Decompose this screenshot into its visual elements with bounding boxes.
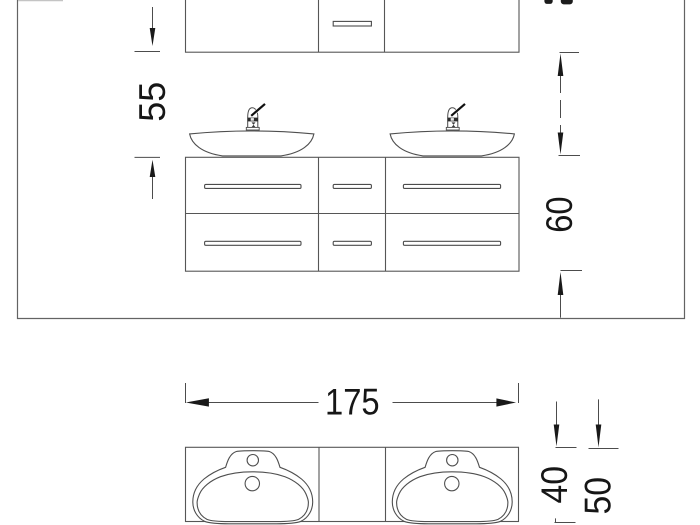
svg-text:55: 55	[132, 82, 174, 122]
svg-text:60: 60	[539, 196, 581, 232]
svg-text:175: 175	[325, 382, 380, 424]
svg-text:50: 50	[577, 477, 619, 515]
svg-text:40: 40	[533, 466, 575, 504]
